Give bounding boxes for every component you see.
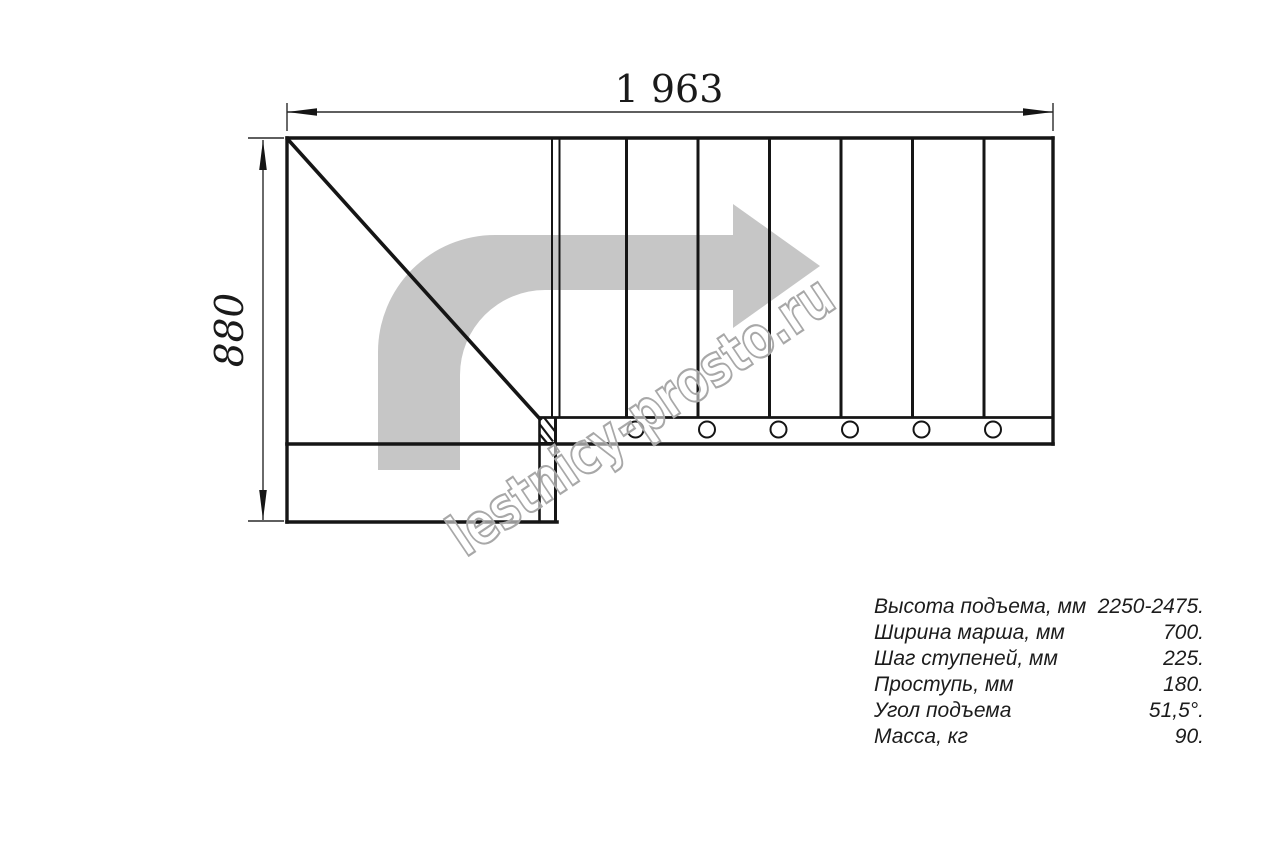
spec-value: 51,5°. xyxy=(1149,698,1204,724)
spec-label: Шаг ступеней, мм xyxy=(874,646,1058,672)
dim-arrow-up xyxy=(259,140,267,170)
dimension-left: 880 xyxy=(208,138,284,521)
spec-row-height: Высота подъема, мм 2250-2475. xyxy=(874,594,1204,620)
spec-value: 90. xyxy=(1175,724,1204,750)
spec-row-width: Ширина марша, мм 700. xyxy=(874,620,1204,646)
spec-row-tread: Проступь, мм 180. xyxy=(874,672,1204,698)
spec-label: Угол подъема xyxy=(874,698,1011,724)
spec-label: Ширина марша, мм xyxy=(874,620,1065,646)
stair-drawing-page: 1 963 880 lestnicy-prosto.ru Высота подъ… xyxy=(0,0,1280,853)
spec-value: 225. xyxy=(1163,646,1204,672)
spec-table: Высота подъема, мм 2250-2475. Ширина мар… xyxy=(874,594,1204,750)
spec-value: 180. xyxy=(1163,672,1204,698)
watermark-text: lestnicy-prosto.ru xyxy=(435,261,846,569)
dimension-width-label: 1 963 xyxy=(615,67,724,111)
dimension-height-label: 880 xyxy=(208,293,253,367)
spec-row-mass: Масса, кг 90. xyxy=(874,724,1204,750)
dimension-top: 1 963 xyxy=(287,67,1053,131)
spec-value: 700. xyxy=(1163,620,1204,646)
dim-arrow-left xyxy=(287,108,317,116)
spec-row-angle: Угол подъема 51,5°. xyxy=(874,698,1204,724)
spec-label: Высота подъема, мм xyxy=(874,594,1086,620)
spec-row-step: Шаг ступеней, мм 225. xyxy=(874,646,1204,672)
spec-value: 2250-2475. xyxy=(1098,594,1204,620)
spec-label: Масса, кг xyxy=(874,724,968,750)
dim-arrow-down xyxy=(259,490,267,520)
spec-label: Проступь, мм xyxy=(874,672,1014,698)
dim-arrow-right xyxy=(1023,108,1053,116)
